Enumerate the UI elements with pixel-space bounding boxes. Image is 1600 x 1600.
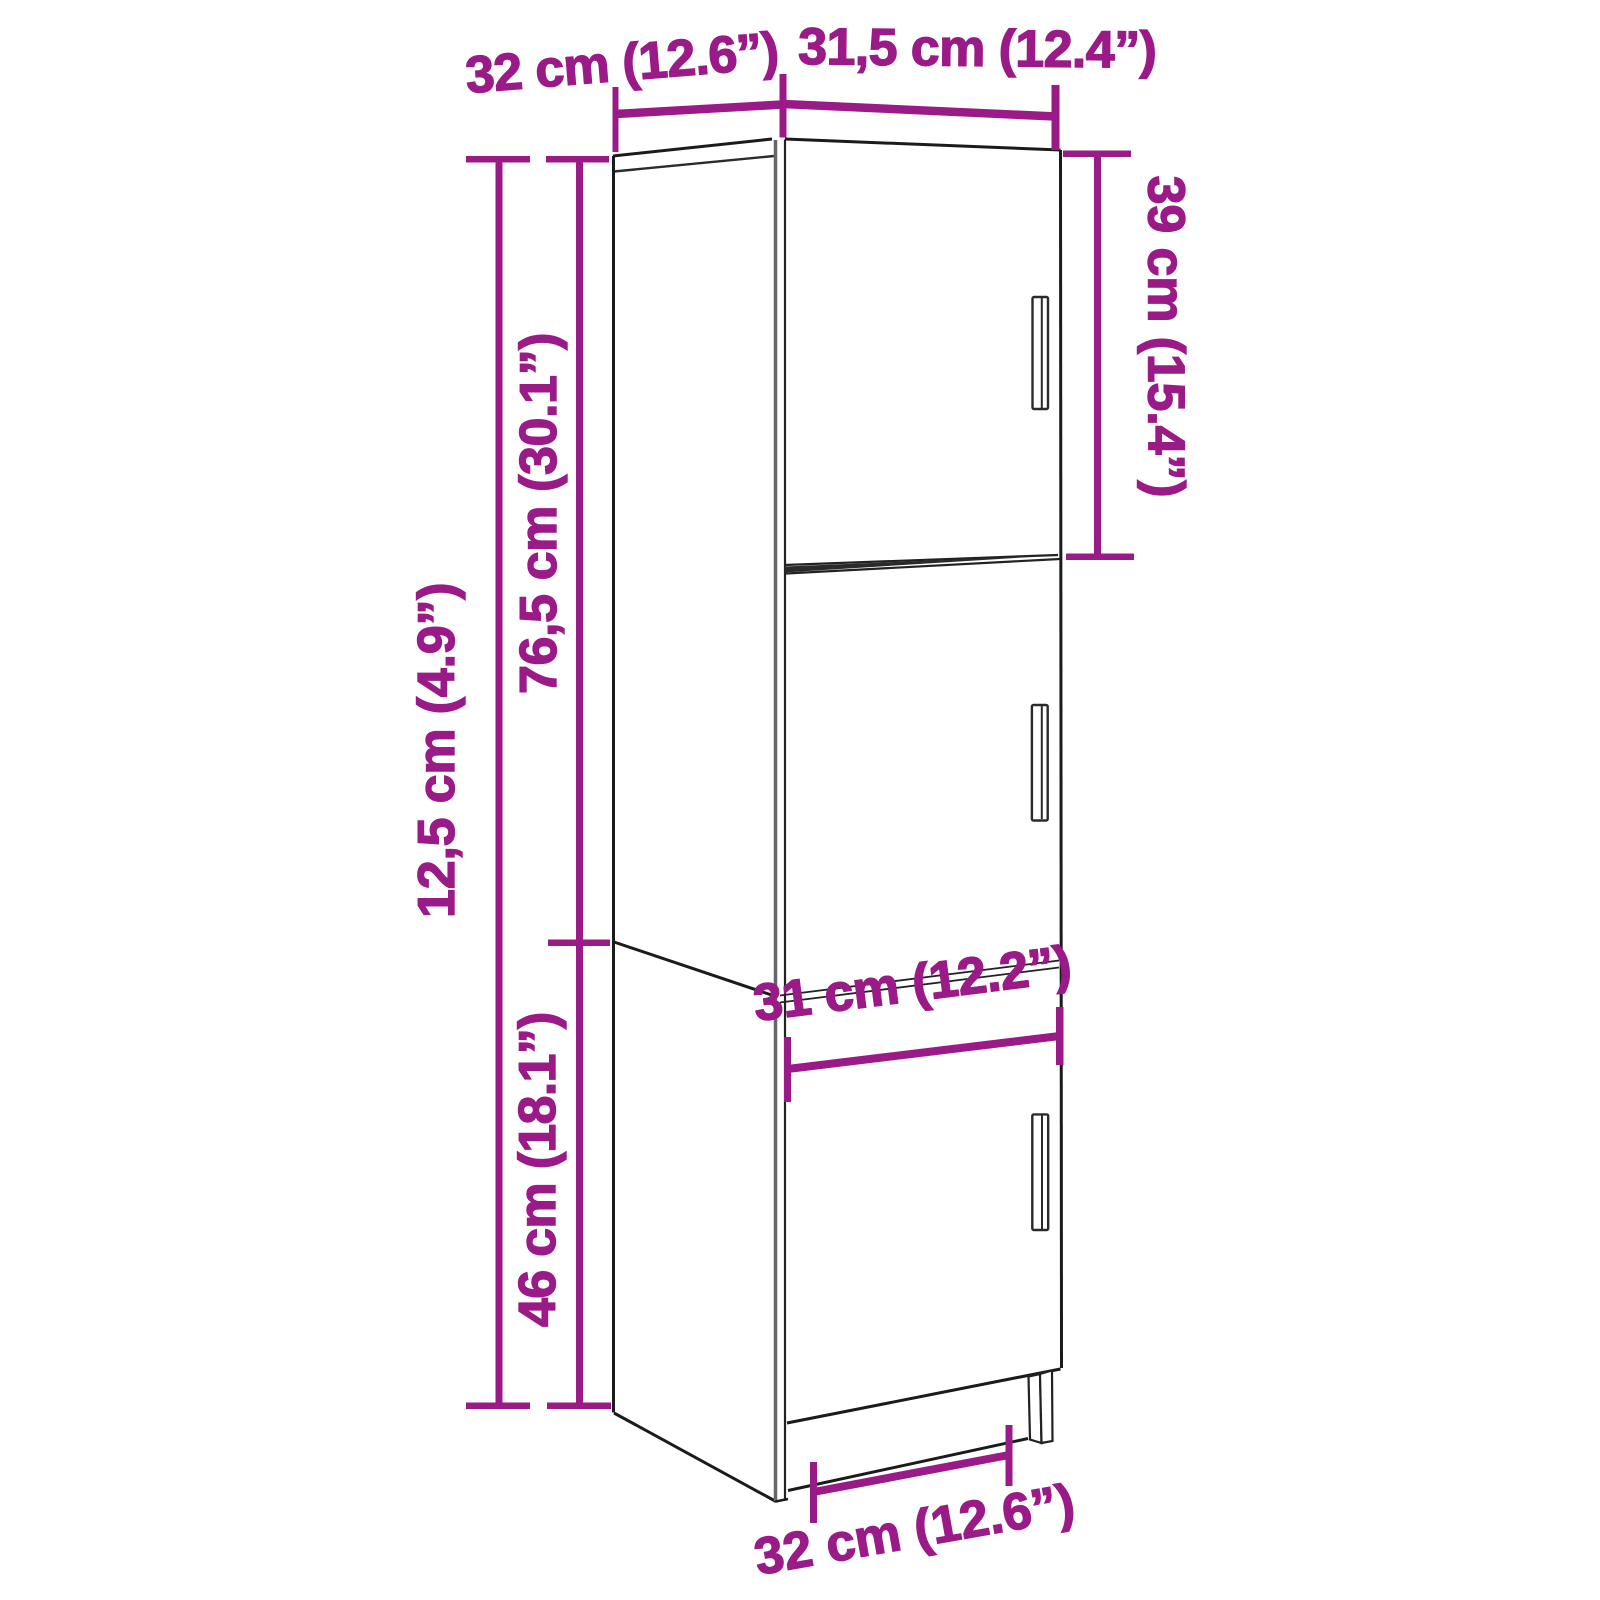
svg-text:39 cm (15.4”): 39 cm (15.4”) (1137, 176, 1195, 498)
svg-text:46 cm (18.1”): 46 cm (18.1”) (509, 1012, 567, 1327)
svg-text:76,5 cm (30.1”): 76,5 cm (30.1”) (510, 333, 568, 694)
svg-text:31,5 cm (12.4”): 31,5 cm (12.4”) (798, 18, 1157, 80)
svg-text:12,5 cm (4.9”): 12,5 cm (4.9”) (408, 583, 466, 918)
